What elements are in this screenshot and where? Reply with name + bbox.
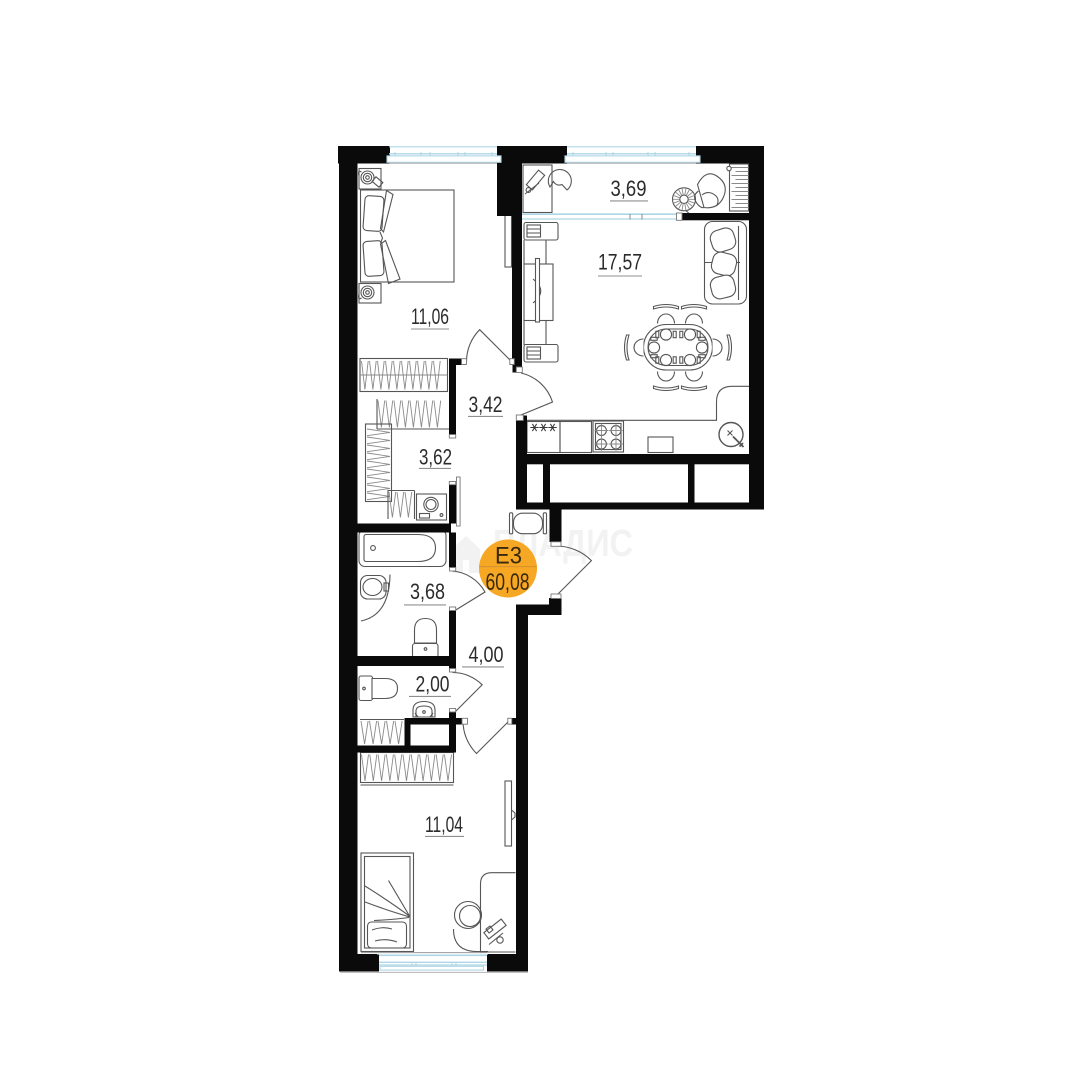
svg-text:Е3: Е3 xyxy=(495,543,522,570)
svg-text:11,04: 11,04 xyxy=(425,812,463,837)
svg-text:60,08: 60,08 xyxy=(486,569,530,596)
svg-text:2,00: 2,00 xyxy=(416,672,450,697)
svg-text:3,62: 3,62 xyxy=(419,445,452,470)
svg-text:4,00: 4,00 xyxy=(469,642,504,667)
svg-text:3,42: 3,42 xyxy=(469,392,503,417)
svg-text:11,06: 11,06 xyxy=(411,304,449,329)
svg-text:17,57: 17,57 xyxy=(598,250,642,275)
svg-text:3,69: 3,69 xyxy=(611,176,647,201)
svg-text:3,68: 3,68 xyxy=(410,579,445,604)
